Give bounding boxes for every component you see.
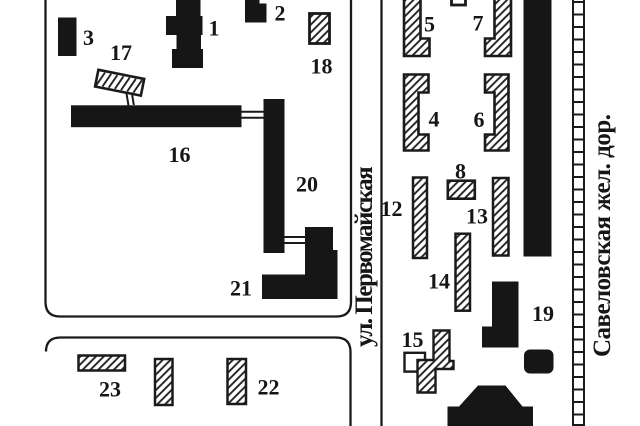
svg-text:19: 19 xyxy=(532,301,554,326)
svg-text:8: 8 xyxy=(455,159,466,184)
svg-text:22: 22 xyxy=(258,375,280,400)
svg-text:1: 1 xyxy=(209,16,220,41)
svg-text:7: 7 xyxy=(473,11,484,36)
svg-text:Савеловская жел. дор.: Савеловская жел. дор. xyxy=(589,114,616,357)
svg-text:5: 5 xyxy=(424,12,435,37)
svg-text:15: 15 xyxy=(402,327,424,352)
svg-text:12: 12 xyxy=(381,196,403,221)
svg-text:21: 21 xyxy=(230,276,252,301)
svg-text:13: 13 xyxy=(466,204,488,229)
svg-text:20: 20 xyxy=(296,172,318,197)
svg-text:2: 2 xyxy=(275,1,286,26)
svg-text:ул. Первомайская: ул. Первомайская xyxy=(351,167,378,347)
svg-text:6: 6 xyxy=(474,107,485,132)
svg-text:17: 17 xyxy=(110,40,132,65)
svg-text:16: 16 xyxy=(169,142,191,167)
svg-text:23: 23 xyxy=(99,377,121,402)
svg-text:4: 4 xyxy=(429,107,440,132)
svg-text:14: 14 xyxy=(428,269,450,294)
svg-text:18: 18 xyxy=(311,54,333,79)
svg-text:3: 3 xyxy=(83,25,94,50)
